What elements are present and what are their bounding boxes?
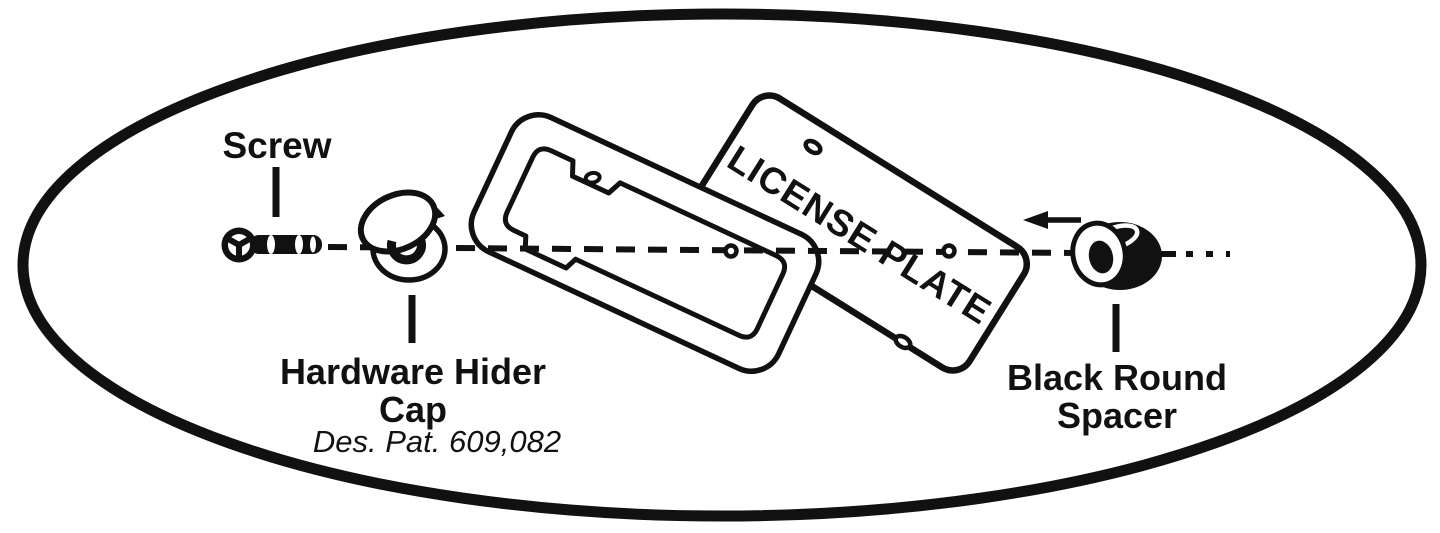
screw-head-center <box>236 242 243 249</box>
screw-thread-band <box>310 237 316 253</box>
diagram-canvas: LICENSE PLATE <box>0 0 1440 533</box>
screw-thread-band <box>267 235 275 254</box>
spacer-label-line1: Black Round <box>1007 357 1227 398</box>
cap-label-line1: Hardware Hider <box>280 351 546 392</box>
plate-side-screw-hole <box>944 246 955 257</box>
screw-thread-band <box>295 235 303 254</box>
cap-patent-text: Des. Pat. 609,082 <box>313 424 561 459</box>
screw-label: Screw <box>222 125 331 166</box>
frame-side-screw-hole <box>726 246 737 257</box>
diagram-stage: LICENSE PLATE <box>0 0 1440 533</box>
frame-top-screw-hole <box>585 172 600 184</box>
spacer-label-line2: Spacer <box>1057 395 1177 436</box>
